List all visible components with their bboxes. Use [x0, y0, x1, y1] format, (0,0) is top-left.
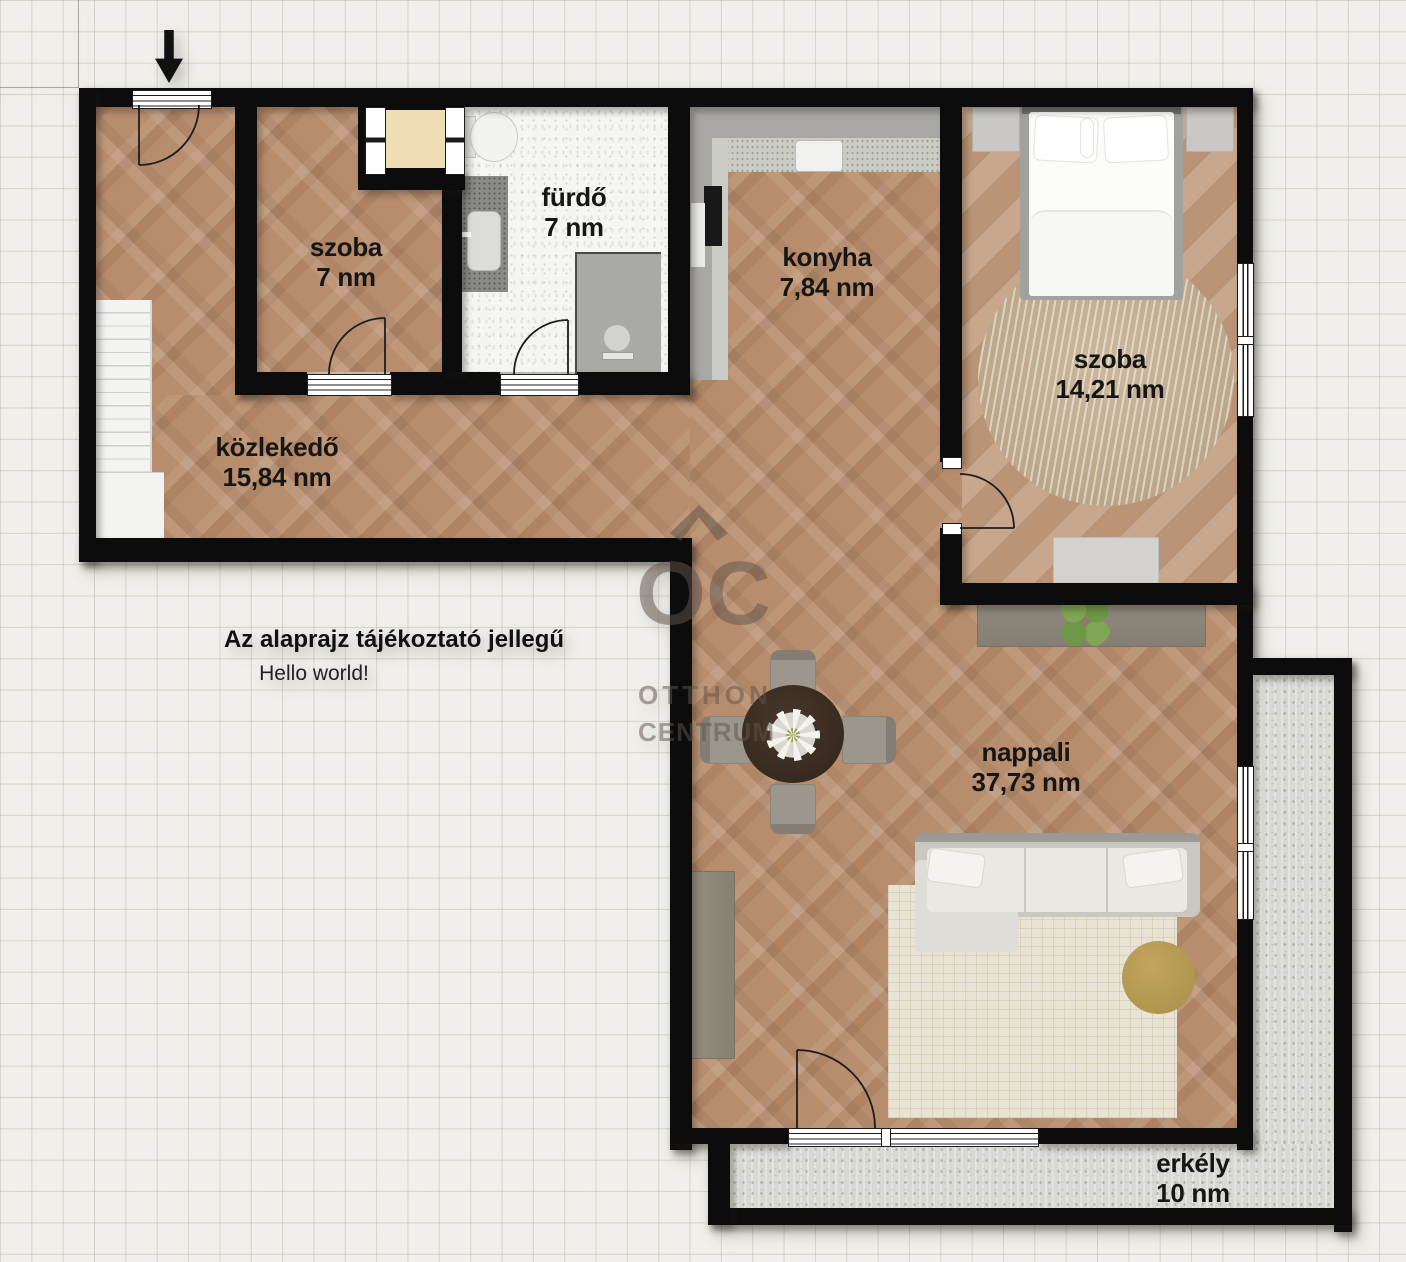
room-label-nappali: nappali 37,73 nm: [926, 737, 1126, 797]
nightstand-right: [1186, 107, 1234, 152]
balcony-window: [890, 1128, 1039, 1147]
room-name: erkély: [1113, 1148, 1273, 1178]
guide-line-horizontal: [0, 87, 79, 88]
smallroom-bathroom-wall: [442, 168, 462, 372]
bedroom-window-divider: [1237, 336, 1254, 345]
sofa: [915, 833, 1200, 953]
dining-chair-right: [842, 716, 896, 764]
living-bottom-wall-right: [1037, 1128, 1253, 1144]
shower-fixture: [602, 352, 634, 360]
tv-stand: [685, 871, 735, 1059]
bedroom-bottom-wall: [940, 583, 1253, 605]
staircase-landing: [96, 472, 164, 539]
room-area: 7 nm: [494, 212, 654, 242]
balcony-left-wall: [708, 1142, 730, 1225]
shower-head: [604, 325, 630, 351]
double-bed: [1020, 100, 1183, 300]
staircase-steps: [96, 300, 152, 473]
nightstand-left: [972, 107, 1020, 152]
balcony-floor-right: [1253, 675, 1334, 1208]
outer-wall-top: [79, 88, 1253, 107]
room-name: szoba: [266, 232, 426, 262]
room-label-szoba-small: szoba 7 nm: [266, 232, 426, 292]
guide-line-vertical: [78, 0, 79, 88]
living-left-wall: [670, 538, 692, 1150]
room-label-furdo: fürdő 7 nm: [494, 182, 654, 242]
closet-niche: [385, 110, 447, 168]
living-window-divider: [1237, 843, 1254, 852]
balcony-door-threshold: [788, 1128, 892, 1147]
room-label-szoba-big: szoba 14,21 nm: [1010, 344, 1210, 404]
entrance-arrow-icon: [155, 30, 183, 83]
kitchen-stove: [704, 186, 722, 246]
kitchen-bedroom-wall-upper: [940, 107, 962, 462]
bathroom-door-threshold: [500, 374, 579, 396]
bedroom-door-jamb-bottom: [942, 523, 962, 535]
room-area: 37,73 nm: [926, 767, 1126, 797]
pouf: [1122, 941, 1195, 1014]
hall-smallroom-wall: [235, 107, 257, 395]
hall-floor-lower: [96, 395, 690, 538]
bedroom-dresser: [1053, 537, 1159, 587]
room-name: nappali: [926, 737, 1126, 767]
outer-wall-right: [1237, 88, 1253, 1150]
table-flower-centerpiece: [766, 709, 820, 761]
smallroom-door-threshold: [307, 374, 392, 396]
bathroom-kitchen-wall: [668, 107, 690, 395]
floorplan-canvas: szoba 7 nm fürdő 7 nm konyha 7,84 nm szo…: [0, 0, 1406, 1262]
rooms-bottom-wall-a: [235, 372, 307, 395]
room-label-kozlekedo: közlekedő 15,84 nm: [187, 432, 367, 492]
balcony-right-wall: [1334, 658, 1352, 1232]
room-area: 7 nm: [266, 262, 426, 292]
bed-pillow-small: [1080, 118, 1094, 158]
kitchen-sink: [795, 140, 843, 172]
dining-chair-bottom: [770, 784, 816, 834]
room-name: közlekedő: [187, 432, 367, 462]
room-name: konyha: [747, 242, 907, 272]
closet-jamb-left: [365, 107, 386, 175]
room-area: 15,84 nm: [187, 462, 367, 492]
entrance-door-threshold: [132, 90, 212, 109]
outer-wall-left: [79, 88, 96, 562]
room-area: 7,84 nm: [747, 272, 907, 302]
rooms-bottom-wall-b: [390, 372, 500, 395]
disclaimer-text: Az alaprajz tájékoztató jellegű: [203, 626, 585, 654]
room-area: 14,21 nm: [1010, 374, 1210, 404]
room-label-erkely: erkély 10 nm: [1113, 1148, 1273, 1208]
room-name: fürdő: [494, 182, 654, 212]
toilet-bowl: [470, 112, 518, 162]
hall-bottom-wall: [79, 538, 690, 562]
balcony-bottom-wall: [708, 1208, 1352, 1225]
room-name: szoba: [1010, 344, 1210, 374]
closet-jamb-right: [445, 107, 465, 175]
bed-duvet: [1029, 210, 1174, 296]
floorplan: szoba 7 nm fürdő 7 nm konyha 7,84 nm szo…: [0, 0, 1406, 1262]
bed-pillow-right: [1103, 114, 1169, 163]
bedroom-door-jamb-top: [942, 457, 962, 469]
disclaimer-note: Hello world!: [204, 662, 424, 686]
vanity-faucet: [462, 232, 471, 237]
room-label-konyha: konyha 7,84 nm: [747, 242, 907, 302]
room-area: 10 nm: [1113, 1178, 1273, 1208]
kitchen-dishwasher: [691, 203, 705, 267]
